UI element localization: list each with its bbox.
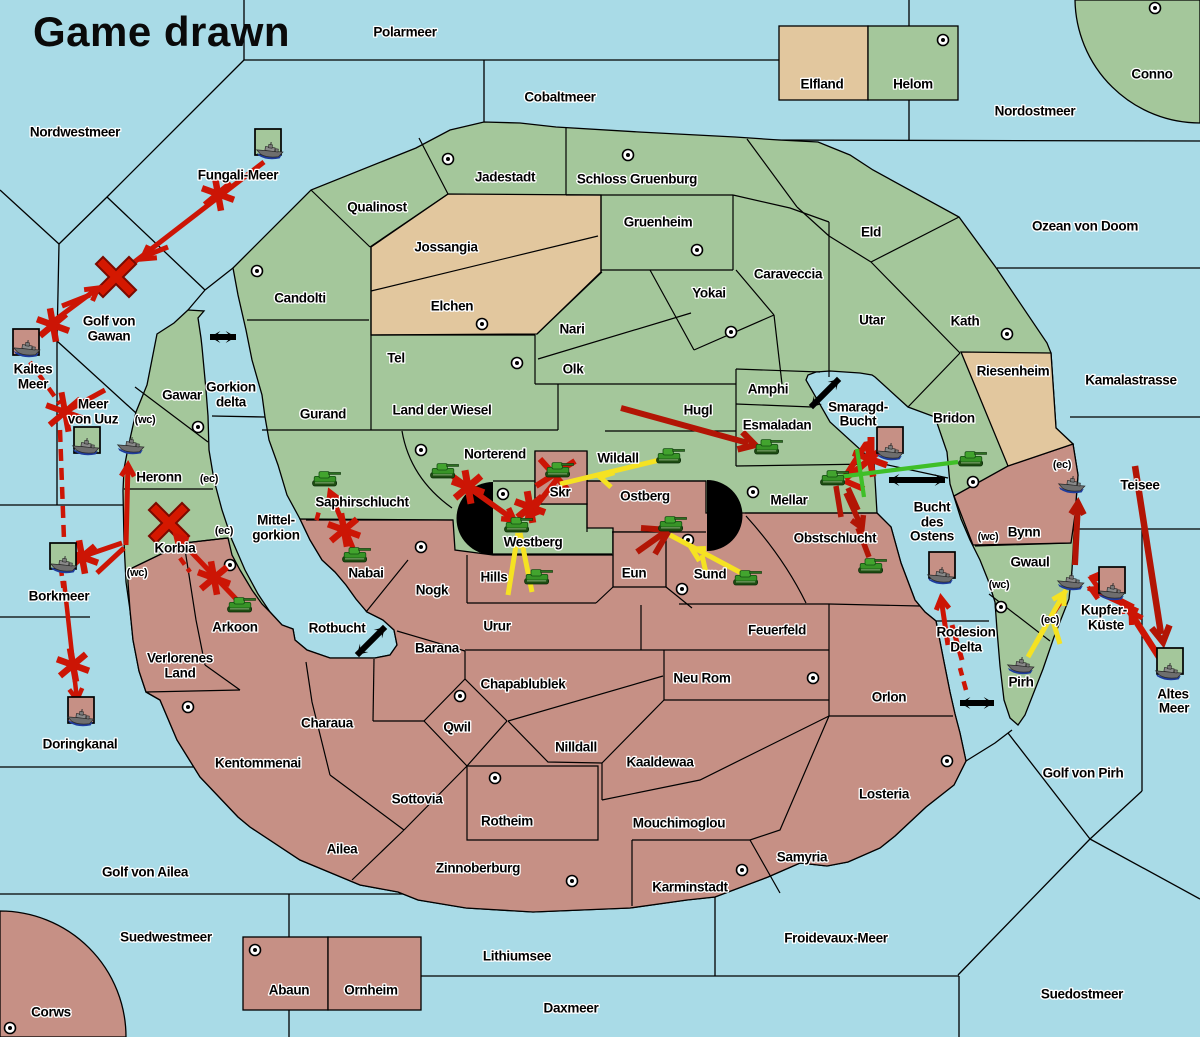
svg-text:Feuerfeld: Feuerfeld (748, 623, 806, 638)
svg-text:Zinnoberburg: Zinnoberburg (436, 861, 520, 876)
svg-text:Saphirschlucht: Saphirschlucht (315, 495, 409, 510)
svg-text:Polarmeer: Polarmeer (373, 25, 437, 40)
svg-text:Teisee: Teisee (1120, 478, 1160, 493)
svg-text:Sund: Sund (694, 567, 727, 582)
svg-text:Delta: Delta (950, 640, 982, 655)
svg-text:Helom: Helom (893, 77, 933, 92)
svg-text:Küste: Küste (1088, 618, 1125, 633)
svg-text:Nogk: Nogk (416, 583, 449, 598)
svg-text:Heronn: Heronn (136, 470, 182, 485)
svg-text:Barana: Barana (415, 641, 460, 656)
svg-text:Meer: Meer (78, 397, 109, 412)
svg-text:Ornheim: Ornheim (344, 983, 398, 998)
svg-text:Ostberg: Ostberg (620, 489, 670, 504)
svg-text:Game drawn: Game drawn (33, 8, 290, 55)
svg-text:Qwil: Qwil (443, 720, 470, 735)
svg-text:Bucht: Bucht (840, 414, 878, 429)
svg-text:Golf von Ailea: Golf von Ailea (102, 865, 189, 880)
svg-text:(wc): (wc) (135, 414, 156, 426)
svg-text:Sottovia: Sottovia (392, 792, 444, 807)
svg-text:(ec): (ec) (1041, 614, 1060, 626)
svg-text:Gwaul: Gwaul (1010, 555, 1049, 570)
svg-text:Gorkion: Gorkion (206, 380, 256, 395)
svg-text:delta: delta (216, 395, 247, 410)
svg-text:Arkoon: Arkoon (212, 620, 258, 635)
svg-text:Corws: Corws (31, 1005, 71, 1020)
svg-text:Golf von Pirh: Golf von Pirh (1043, 766, 1124, 781)
svg-text:des: des (921, 515, 943, 530)
svg-text:Obstschlucht: Obstschlucht (794, 531, 877, 546)
svg-text:Westberg: Westberg (504, 535, 563, 550)
svg-text:Borkmeer: Borkmeer (29, 589, 91, 604)
svg-text:Meer: Meer (1159, 701, 1190, 716)
svg-text:Mellar: Mellar (770, 493, 808, 508)
svg-text:Korbia: Korbia (155, 541, 197, 556)
svg-text:Orlon: Orlon (872, 690, 907, 705)
svg-text:Skr: Skr (550, 485, 572, 500)
svg-text:Ailea: Ailea (327, 842, 359, 857)
svg-text:Gawan: Gawan (88, 329, 131, 344)
svg-text:Jossangia: Jossangia (414, 240, 478, 255)
svg-text:Bynn: Bynn (1008, 525, 1041, 540)
svg-text:Olk: Olk (563, 362, 585, 377)
svg-text:Smaragd-: Smaragd- (828, 400, 888, 415)
svg-text:Nordostmeer: Nordostmeer (995, 104, 1077, 119)
svg-text:Kupfer-: Kupfer- (1081, 603, 1127, 618)
svg-text:(wc): (wc) (127, 567, 148, 579)
svg-text:(wc): (wc) (989, 579, 1010, 591)
svg-text:Caraveccia: Caraveccia (754, 267, 823, 282)
svg-text:Rotheim: Rotheim (481, 814, 533, 829)
svg-text:Eld: Eld (861, 225, 881, 240)
svg-text:Bucht: Bucht (914, 500, 952, 515)
svg-text:Charaua: Charaua (301, 716, 354, 731)
svg-text:Elchen: Elchen (431, 299, 474, 314)
svg-text:Neu Rom: Neu Rom (673, 671, 730, 686)
svg-text:Kaltes: Kaltes (14, 362, 53, 377)
svg-text:Suedostmeer: Suedostmeer (1041, 987, 1124, 1002)
svg-text:gorkion: gorkion (252, 528, 299, 543)
svg-text:Amphi: Amphi (748, 382, 789, 397)
svg-text:Qualinost: Qualinost (347, 200, 407, 215)
svg-text:Gurand: Gurand (300, 407, 346, 422)
svg-text:Mittel-: Mittel- (257, 513, 295, 528)
svg-text:Mouchimoglou: Mouchimoglou (633, 816, 725, 831)
svg-text:Jadestadt: Jadestadt (475, 170, 536, 185)
svg-text:Conno: Conno (1131, 67, 1172, 82)
svg-text:Lithiumsee: Lithiumsee (483, 949, 552, 964)
svg-text:Fungali-Meer: Fungali-Meer (198, 168, 279, 183)
svg-text:Ostens: Ostens (910, 529, 954, 544)
svg-text:Daxmeer: Daxmeer (544, 1001, 600, 1016)
svg-text:Bridon: Bridon (933, 411, 975, 426)
svg-text:(ec): (ec) (215, 525, 234, 537)
svg-text:Gawar: Gawar (162, 388, 203, 403)
svg-text:Chapablublek: Chapablublek (481, 677, 567, 692)
svg-text:Norterend: Norterend (464, 447, 526, 462)
svg-text:(ec): (ec) (200, 473, 219, 485)
svg-text:Nordwestmeer: Nordwestmeer (30, 125, 121, 140)
svg-text:Karminstadt: Karminstadt (652, 880, 728, 895)
svg-text:Kamalastrasse: Kamalastrasse (1085, 373, 1177, 388)
svg-text:Rodesion: Rodesion (936, 625, 995, 640)
svg-text:Losteria: Losteria (859, 787, 910, 802)
svg-text:Urur: Urur (483, 619, 511, 634)
svg-text:Hugl: Hugl (684, 403, 713, 418)
svg-text:Rotbucht: Rotbucht (309, 621, 367, 636)
svg-text:Land der Wiesel: Land der Wiesel (393, 403, 492, 418)
svg-text:Utar: Utar (859, 313, 886, 328)
svg-text:Abaun: Abaun (269, 983, 310, 998)
svg-text:Doringkanal: Doringkanal (43, 737, 118, 752)
svg-text:Kath: Kath (951, 314, 980, 329)
svg-text:Elfland: Elfland (801, 77, 844, 92)
svg-text:Wildall: Wildall (597, 451, 638, 466)
svg-text:Candolti: Candolti (274, 291, 326, 306)
svg-text:Meer: Meer (18, 377, 49, 392)
svg-text:Verlorenes: Verlorenes (147, 651, 213, 666)
svg-text:Nari: Nari (559, 322, 584, 337)
svg-text:Froidevaux-Meer: Froidevaux-Meer (784, 931, 889, 946)
svg-text:Cobaltmeer: Cobaltmeer (524, 90, 596, 105)
svg-text:Samyria: Samyria (777, 850, 828, 865)
svg-text:Nilldall: Nilldall (555, 740, 597, 755)
svg-text:Yokai: Yokai (692, 286, 726, 301)
svg-text:Hills: Hills (480, 570, 507, 585)
svg-text:Altes: Altes (1157, 687, 1189, 702)
svg-text:Nabai: Nabai (348, 566, 383, 581)
svg-text:Riesenheim: Riesenheim (977, 364, 1050, 379)
svg-text:Ozean von Doom: Ozean von Doom (1032, 219, 1138, 234)
svg-text:Land: Land (164, 666, 195, 681)
svg-text:von Uuz: von Uuz (68, 412, 119, 427)
svg-text:Tel: Tel (387, 351, 405, 366)
svg-text:Kentommenai: Kentommenai (215, 756, 301, 771)
svg-text:Esmaladan: Esmaladan (743, 418, 812, 433)
svg-text:Golf von: Golf von (83, 314, 135, 329)
svg-text:Pirh: Pirh (1008, 675, 1033, 690)
svg-text:(ec): (ec) (1053, 459, 1072, 471)
svg-text:(wc): (wc) (978, 531, 999, 543)
svg-text:Eun: Eun (622, 566, 647, 581)
svg-text:Kaaldewaa: Kaaldewaa (626, 755, 694, 770)
svg-text:Schloss Gruenburg: Schloss Gruenburg (577, 172, 697, 187)
svg-text:Gruenheim: Gruenheim (624, 215, 693, 230)
svg-text:Suedwestmeer: Suedwestmeer (120, 930, 213, 945)
